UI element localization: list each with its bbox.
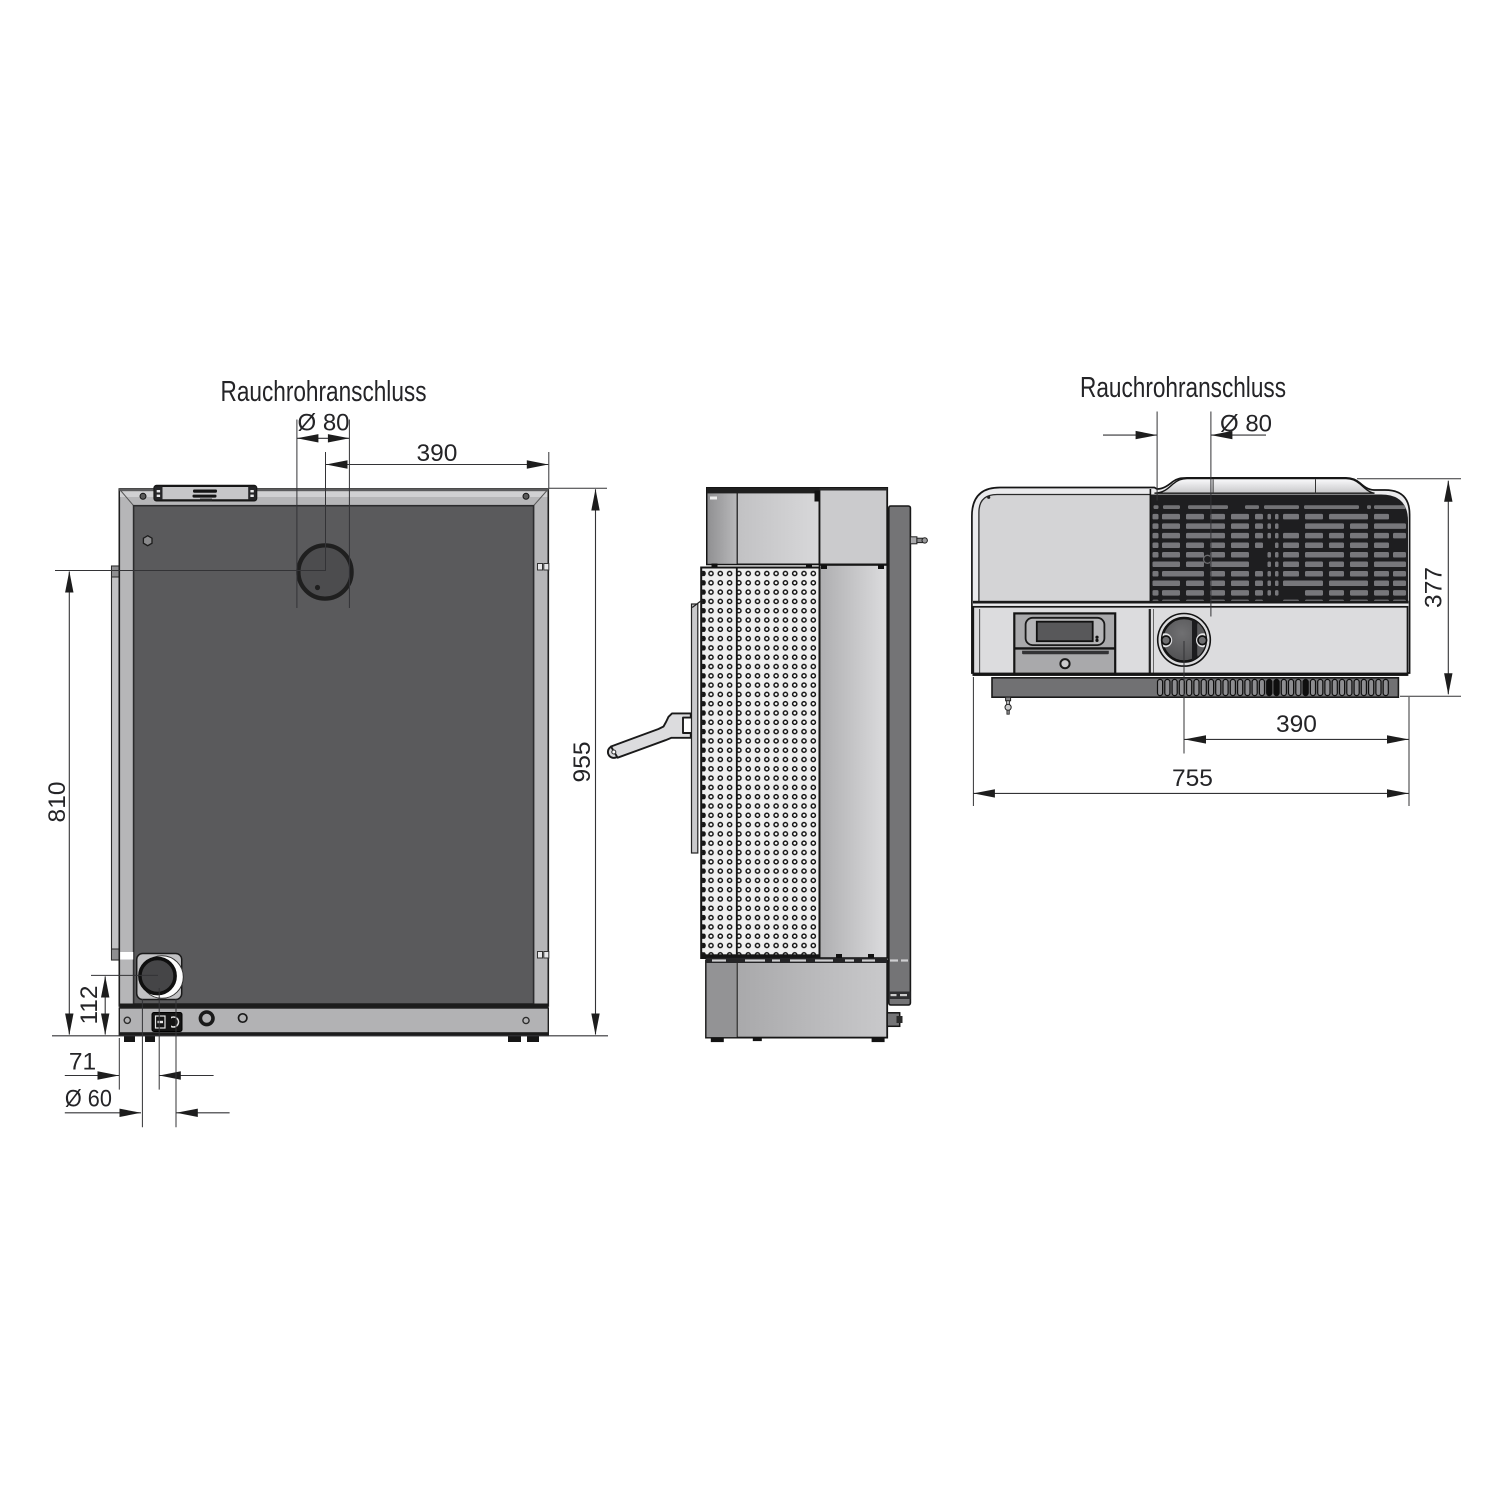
svg-text:377: 377 [1421, 567, 1448, 608]
svg-text:Rauchrohranschluss: Rauchrohranschluss [221, 376, 427, 408]
svg-text:390: 390 [1276, 711, 1317, 738]
svg-text:755: 755 [1172, 765, 1213, 792]
svg-text:112: 112 [76, 985, 103, 1024]
svg-text:Ø 60: Ø 60 [65, 1086, 112, 1113]
svg-text:810: 810 [44, 782, 71, 823]
svg-text:Ø 80: Ø 80 [298, 409, 350, 436]
svg-text:955: 955 [569, 742, 596, 783]
svg-text:390: 390 [417, 440, 458, 467]
svg-text:Rauchrohranschluss: Rauchrohranschluss [1080, 372, 1286, 404]
svg-text:71: 71 [69, 1049, 96, 1076]
